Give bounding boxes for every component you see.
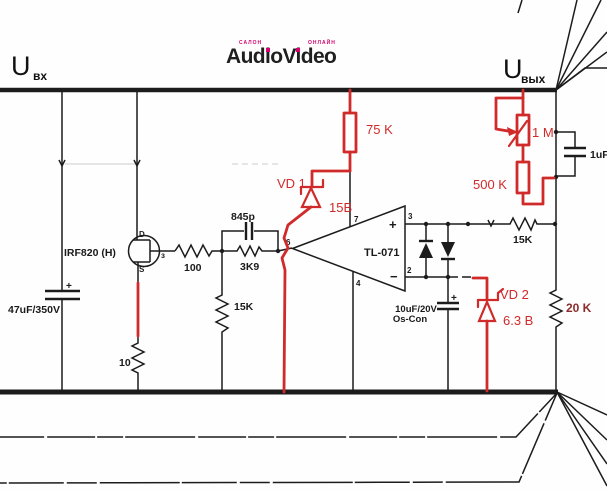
schematic-page: + 47uF/350V D S з IRF820 (H) 100 845p 3K…	[0, 0, 607, 490]
opamp-pin7-label: 7	[354, 215, 359, 224]
output-column: 1uF 20 K	[550, 92, 607, 392]
logo-i-dot-1	[266, 48, 270, 52]
oscon-capacitor: + 10uF/20V Os-Con	[393, 277, 459, 392]
logo-main-text: AudioVideo	[226, 45, 336, 69]
opamp-tl071: 7 4 3 2 6 + − TL-071 15K	[286, 171, 556, 392]
output-cap-label: 1uF	[590, 149, 607, 161]
mosfet-pin-g: з	[161, 251, 165, 260]
zener1-designator: VD 1	[277, 176, 306, 191]
source-resistor-label: 10	[119, 357, 131, 369]
mosfet-label: IRF820 (H)	[64, 247, 116, 259]
feedback-cap-label: 845p	[231, 211, 255, 223]
zener1-value: 15B	[329, 200, 352, 215]
load-resistor-label: 20 K	[566, 301, 592, 315]
mosfet-pin-d: D	[139, 230, 145, 239]
gate-resistor-label: 100	[184, 262, 202, 274]
opamp-pin2-label: 2	[407, 266, 412, 275]
sense-resistor-label: 15K	[513, 234, 533, 246]
input-cap-label: 47uF/350V	[8, 304, 60, 316]
oscon-plus-sign: +	[451, 293, 457, 304]
pot-label: 1 M	[532, 125, 554, 140]
opamp-minus-input: −	[390, 269, 398, 284]
input-protection-diodes	[419, 222, 470, 279]
input-capacitor-47uf: + 47uF/350V	[8, 92, 80, 392]
opamp-plus-input: +	[389, 217, 397, 232]
source-resistor-10: 10	[119, 335, 144, 392]
gate-resistor-100: 100	[175, 245, 222, 274]
red-zener-vd2: VD 2 6.3 B	[473, 278, 533, 391]
gate-ground-resistor-label: 15K	[234, 301, 254, 313]
feedback-network: 845p 3K9	[220, 211, 292, 273]
output-voltage-label: U	[503, 54, 523, 84]
input-cap-plus-sign: +	[66, 281, 72, 292]
mosfet-irf820: D S з IRF820 (H)	[64, 92, 175, 283]
opamp-pin3-label: 3	[408, 212, 413, 221]
oscon-cap-label2: Os-Con	[393, 314, 428, 325]
red-zener-vd1: VD 1 15B	[277, 171, 352, 392]
opamp-pin4-label: 4	[356, 279, 361, 288]
zener2-designator: VD 2	[500, 287, 529, 302]
zener2-value: 6.3 B	[503, 313, 533, 328]
output-voltage-sub: вых	[521, 72, 546, 86]
divider-resistor-label: 500 K	[473, 177, 507, 192]
opamp-label: TL-071	[364, 247, 399, 259]
erased-line-artifacts	[59, 160, 494, 226]
supply-resistor-label: 75 K	[366, 122, 393, 137]
input-voltage-label: U	[11, 51, 31, 81]
red-potentiometer-1m: 1 M	[496, 90, 554, 162]
audiovideo-logo: салон онлайн AudioVideo	[224, 40, 354, 76]
red-divider-resistor-500k: 500 K	[473, 162, 554, 204]
input-voltage-sub: вх	[33, 69, 47, 83]
logo-i-dot-2	[296, 48, 300, 52]
feedback-resistor-label: 3K9	[240, 261, 259, 273]
mosfet-pin-s: S	[139, 265, 145, 274]
red-supply-resistor-75k: 75 K	[344, 90, 393, 171]
bottom-right-fanout-wires	[0, 392, 607, 486]
